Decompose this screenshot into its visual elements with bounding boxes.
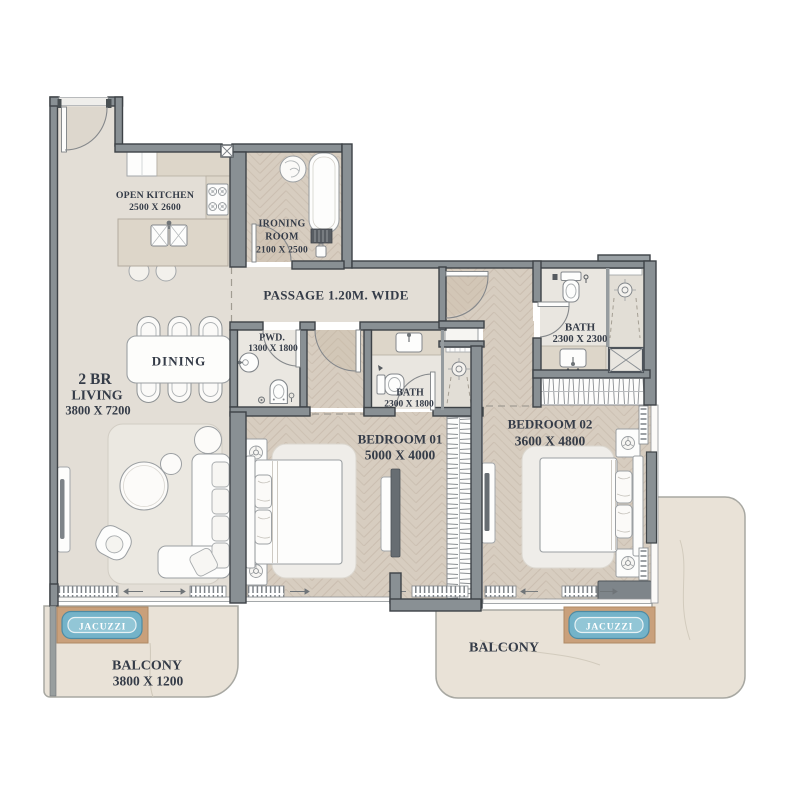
svg-text:2300 X 1800: 2300 X 1800 xyxy=(384,400,434,410)
svg-text:2100 X 2500: 2100 X 2500 xyxy=(256,246,308,256)
svg-text:2300 X 2300: 2300 X 2300 xyxy=(553,334,608,345)
svg-text:5000 X 4000: 5000 X 4000 xyxy=(365,448,436,463)
svg-text:JACUZZI: JACUZZI xyxy=(586,623,633,633)
svg-text:2 BR: 2 BR xyxy=(78,371,112,388)
svg-text:3800 X 1200: 3800 X 1200 xyxy=(113,674,184,689)
svg-text:1300 X 1800: 1300 X 1800 xyxy=(248,344,298,354)
svg-text:BATH: BATH xyxy=(565,322,596,334)
svg-text:PASSAGE 1.20M. WIDE: PASSAGE 1.20M. WIDE xyxy=(263,288,408,303)
svg-text:IRONING: IRONING xyxy=(258,219,305,230)
svg-text:BALCONY: BALCONY xyxy=(112,659,182,674)
svg-text:ROOM: ROOM xyxy=(265,232,299,243)
svg-text:OPEN KITCHEN: OPEN KITCHEN xyxy=(116,190,194,201)
svg-text:BEDROOM 02: BEDROOM 02 xyxy=(508,417,593,432)
svg-text:BEDROOM 01: BEDROOM 01 xyxy=(358,432,443,447)
svg-text:BALCONY: BALCONY xyxy=(469,641,539,656)
svg-text:2500 X 2600: 2500 X 2600 xyxy=(129,203,181,213)
svg-text:BATH: BATH xyxy=(396,388,424,399)
svg-text:JACUZZI: JACUZZI xyxy=(79,623,126,633)
svg-text:3800 X 7200: 3800 X 7200 xyxy=(65,404,130,418)
svg-text:LIVING: LIVING xyxy=(71,389,122,404)
svg-text:3600 X 4800: 3600 X 4800 xyxy=(515,434,586,449)
svg-text:DINING: DINING xyxy=(152,354,206,369)
svg-text:PWD.: PWD. xyxy=(259,333,285,344)
